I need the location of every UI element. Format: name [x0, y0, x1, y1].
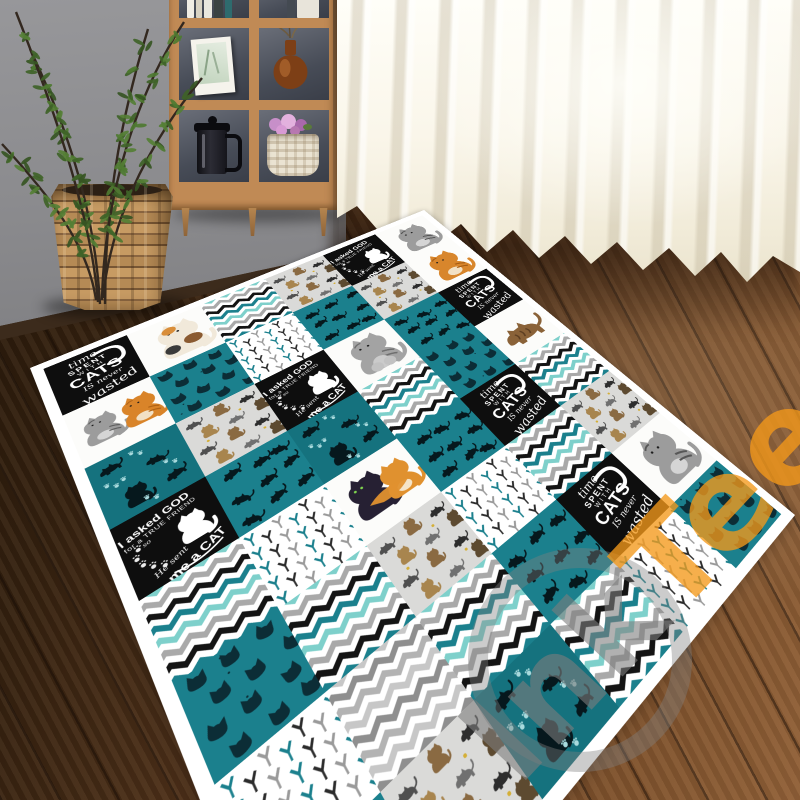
- woven-basket: [267, 134, 319, 176]
- book: [287, 0, 295, 18]
- shelf-cube-books-right: [259, 0, 329, 18]
- potted-plant: [0, 0, 228, 334]
- amber-vase: [259, 28, 329, 100]
- shelf-cube-basket: [259, 110, 329, 182]
- book: [297, 0, 319, 18]
- room-scene: time SPENT WITH CATS IS never wasted I: [0, 0, 800, 800]
- leaf: [303, 124, 312, 130]
- quote-line: so: [345, 260, 352, 264]
- shelf-cube-vase: [259, 28, 329, 100]
